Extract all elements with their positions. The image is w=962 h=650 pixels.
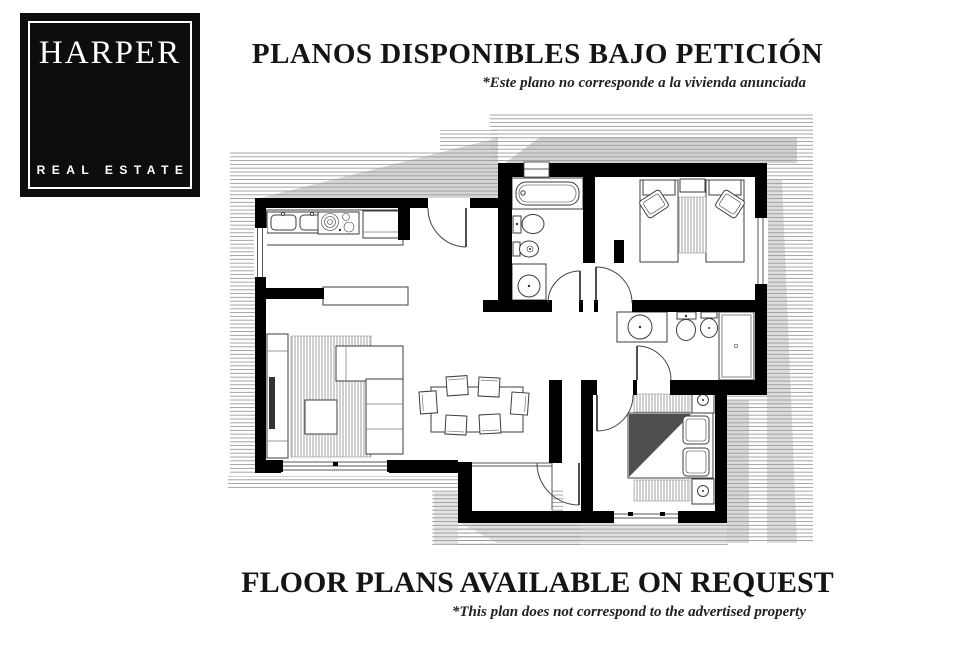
bidet — [513, 241, 539, 257]
entry-door — [428, 208, 466, 247]
tv-unit — [267, 334, 288, 458]
nightstand — [692, 479, 714, 504]
twin-bedroom — [638, 179, 745, 262]
washbasin — [617, 312, 667, 342]
bathroom-window — [524, 162, 549, 177]
dining-chair — [445, 415, 467, 435]
washbasin — [512, 264, 546, 300]
bedside-rug — [634, 480, 690, 501]
dining-chair — [510, 392, 528, 415]
dining-area — [419, 376, 529, 436]
bathroom1-door — [548, 271, 580, 303]
bathtub — [512, 178, 583, 209]
dining-table — [431, 387, 523, 432]
coffee-table — [305, 400, 337, 434]
twin-bedroom-door — [596, 267, 632, 303]
living-room-window — [279, 459, 391, 474]
master-bedroom — [628, 388, 714, 504]
bedside-rug — [634, 394, 690, 412]
twin-bed — [706, 180, 746, 262]
kitchen-appliance — [363, 211, 402, 238]
toilet — [677, 312, 697, 341]
bathroom-1 — [512, 178, 583, 300]
stove — [318, 212, 359, 234]
living-room — [267, 334, 403, 458]
double-bed — [628, 413, 713, 478]
dining-chair — [479, 414, 501, 434]
dining-chair — [446, 376, 468, 396]
bathroom2-door — [637, 346, 671, 380]
shower — [719, 312, 754, 380]
twin-bed — [638, 180, 678, 262]
dining-chair — [419, 391, 437, 414]
tv — [269, 377, 275, 429]
flyer-page: HARPER REAL ESTATE PLANOS DISPONIBLES BA… — [0, 0, 962, 650]
bedroom-window — [754, 218, 768, 284]
bedside-table — [680, 179, 705, 192]
terrace-floor — [472, 462, 552, 511]
bedroom-rug — [679, 197, 706, 253]
kitchen-peninsula — [323, 287, 408, 305]
kitchen-window — [254, 228, 267, 277]
bidet — [701, 312, 718, 338]
dining-chair — [478, 377, 500, 397]
floor-plan — [0, 0, 962, 650]
master-bedroom-window — [614, 510, 678, 524]
toilet — [513, 215, 544, 234]
